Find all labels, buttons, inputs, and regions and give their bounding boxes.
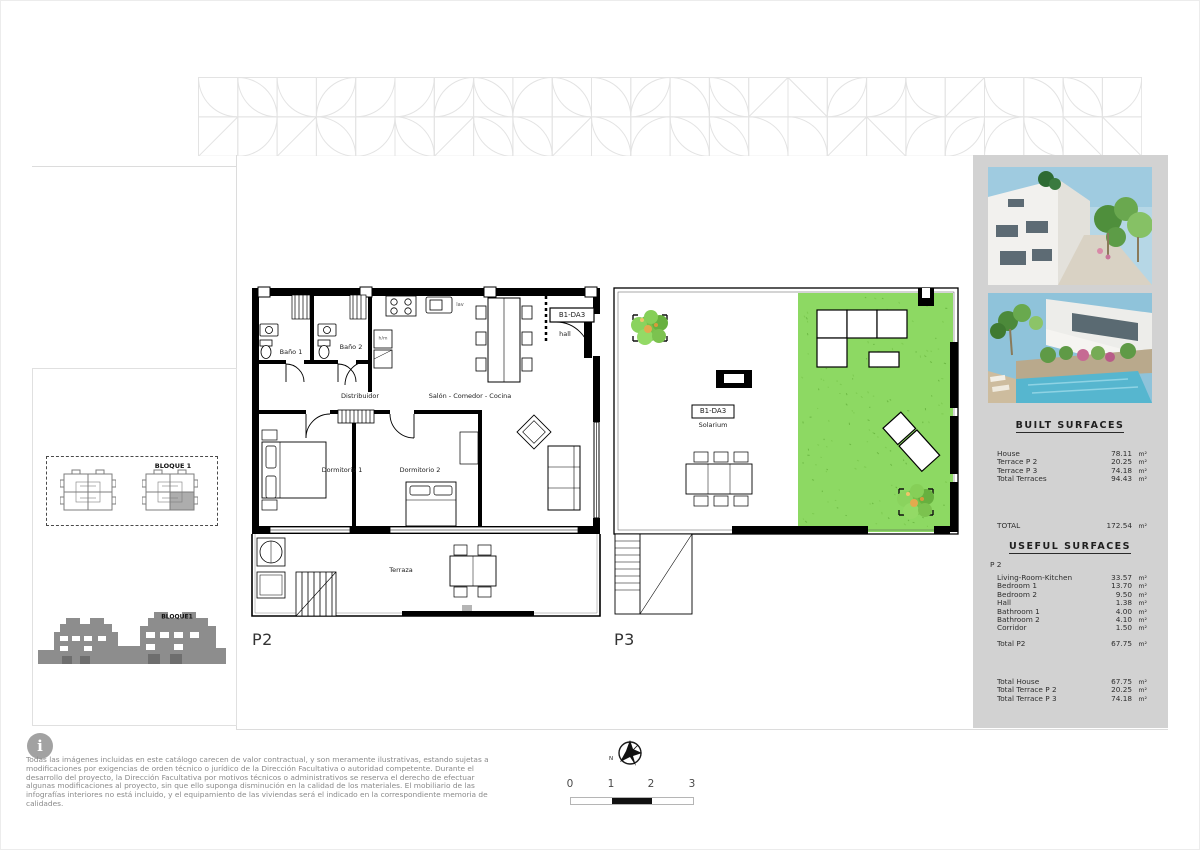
- room-label-dormitorio1: Dormitorio 1: [322, 466, 363, 474]
- render-photo-pool: [988, 293, 1152, 403]
- table-row: Bedroom 1 13.70 m²: [997, 581, 1147, 589]
- room-label-salon: Salón - Comedor - Cocina: [429, 392, 512, 400]
- label-washer: h/m: [379, 337, 388, 342]
- useful-surfaces-table: Living-Room-Kitchen 33.57 m² Bedroom 1 1…: [997, 573, 1147, 632]
- p2-dining-table: [476, 298, 532, 382]
- scale-tick-0: 0: [567, 778, 574, 790]
- compass-icon: [608, 738, 650, 774]
- floorplan-p2: [250, 286, 602, 622]
- table-row: Corridor 1.50 m²: [997, 623, 1147, 631]
- brochure-page: BLOQUE 1 BLOQUE1: [0, 0, 1200, 850]
- p2-armchair: [517, 415, 551, 449]
- p2-kitchen: [374, 296, 452, 368]
- floorplan-p3: [612, 286, 960, 622]
- table-row: Total Terrace P 2 20.25 m²: [997, 685, 1147, 693]
- room-label-bano1: Baño 1: [280, 348, 303, 356]
- p2-terrace: [252, 534, 600, 616]
- p2-sofa: [548, 446, 580, 510]
- plan-label-p2: P2: [252, 630, 273, 649]
- table-row: Total House 67.75 m²: [997, 677, 1147, 685]
- unit-code-p3: B1-DA3: [700, 407, 726, 415]
- useful-surfaces-title: USEFUL SURFACES: [991, 541, 1149, 552]
- scale-bar: [570, 797, 694, 805]
- built-surfaces-title: BUILT SURFACES: [991, 420, 1149, 431]
- table-row: Bathroom 1 4.00 m²: [997, 607, 1147, 615]
- disclaimer-text: Todas las imágenes incluidas en este cat…: [26, 756, 492, 809]
- block-elevation-label: BLOQUE1: [161, 614, 193, 621]
- p2-wardrobe: [338, 410, 374, 423]
- room-label-distribuidor: Distribuidor: [341, 392, 379, 400]
- scale-tick-3: 3: [689, 778, 696, 790]
- p2-doors: [286, 322, 590, 438]
- room-label-terraza: Terraza: [389, 566, 412, 574]
- room-label-hall: hall: [559, 330, 571, 338]
- useful-surfaces-section-label: P 2: [990, 560, 1002, 569]
- built-surfaces-table: House 78.11 m² Terrace P 2 20.25 m² Terr…: [997, 449, 1147, 483]
- scale-tick-2: 2: [648, 778, 655, 790]
- p3-stairs: [615, 534, 692, 614]
- frame-line-top-left: [32, 166, 236, 167]
- p3-ottoman: [869, 352, 899, 367]
- table-row: Bathroom 2 4.10 m²: [997, 615, 1147, 623]
- table-row: House 78.11 m²: [997, 449, 1147, 457]
- room-label-dormitorio2: Dormitorio 2: [400, 466, 441, 474]
- p3-black-box: [716, 370, 752, 388]
- block-elevation-drawing: [36, 598, 228, 674]
- p2-bed-2: [406, 432, 478, 526]
- built-surfaces-total: TOTAL 172.54 m²: [997, 521, 1147, 529]
- p2-terrace-table: [450, 545, 496, 597]
- useful-surfaces-totals: Total House 67.75 m² Total Terrace P 2 2…: [997, 677, 1147, 702]
- room-label-bano2: Baño 2: [340, 343, 363, 351]
- building-footprint-left: [60, 468, 116, 516]
- building-footprint-right-highlighted: [142, 468, 198, 516]
- frame-line-bottom: [236, 729, 1168, 730]
- table-row: Living-Room-Kitchen 33.57 m²: [997, 573, 1147, 581]
- table-row: Terrace P 3 74.18 m²: [997, 466, 1147, 474]
- table-row: Total Terraces 94.43 m²: [997, 474, 1147, 482]
- table-row: Total Terrace P 3 74.18 m²: [997, 694, 1147, 702]
- north-label: N: [609, 756, 613, 762]
- block-plan-label: BLOQUE 1: [155, 462, 191, 470]
- room-label-solarium: Solarium: [699, 421, 728, 429]
- p2-bed-1: [262, 430, 326, 510]
- table-row: Total P2 67.75 m²: [997, 639, 1147, 647]
- table-row: Hall 1.38 m²: [997, 598, 1147, 606]
- p3-dining-table: [686, 452, 752, 506]
- plan-label-p3: P3: [614, 630, 635, 649]
- useful-surfaces-subtotal: Total P2 67.75 m²: [997, 639, 1147, 647]
- surfaces-sidebar: BUILT SURFACES House 78.11 m² Terrace P …: [973, 155, 1168, 728]
- table-row: Bedroom 2 9.50 m²: [997, 590, 1147, 598]
- table-row: Terrace P 2 20.25 m²: [997, 457, 1147, 465]
- render-photo-building: [988, 167, 1152, 285]
- scale-tick-1: 1: [608, 778, 615, 790]
- unit-code-p2: B1-DA3: [559, 311, 585, 319]
- table-row: TOTAL 172.54 m²: [997, 521, 1147, 529]
- decorative-pattern-band: [198, 77, 1142, 156]
- label-lav: lav: [456, 302, 463, 308]
